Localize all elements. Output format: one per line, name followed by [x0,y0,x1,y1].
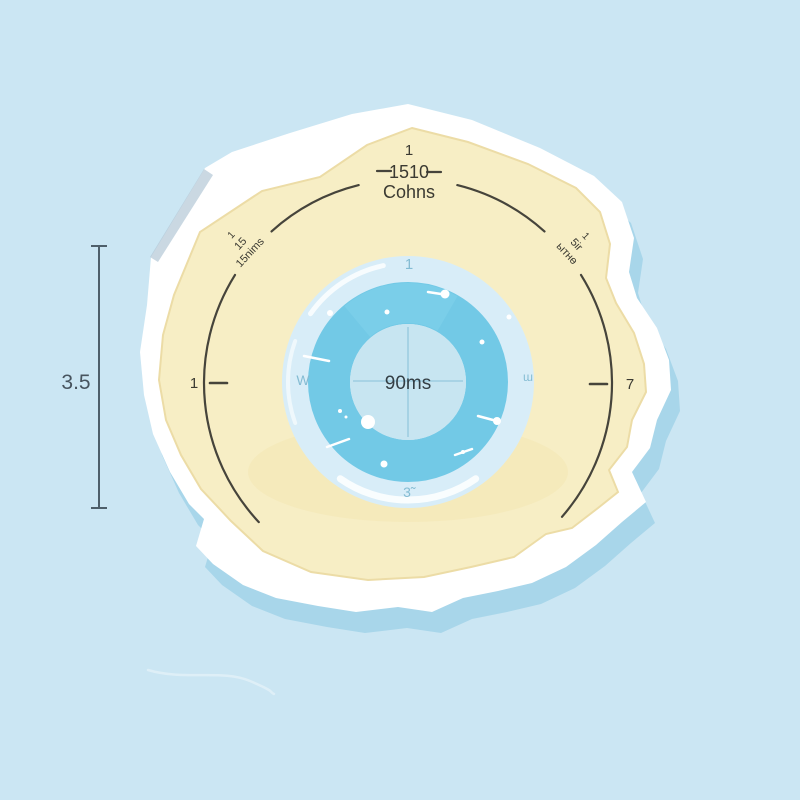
gauge-illustration: 1 1510 Cohns 1 7 1 15 15nims 1 5ir ытнө … [0,0,800,800]
sparkle-dot [507,315,512,320]
sparkle-dot [345,416,348,419]
dial-top-value: 1510 [389,162,429,182]
sparkle-dot [338,409,342,413]
sparkle-dot [493,417,501,425]
ring-top-label: 1 [405,256,413,273]
dial-top-tick-label: 1 [405,142,413,159]
sparkle-dot [361,415,375,429]
swim-ring-band-highlight [357,303,447,321]
sparkle-dot [480,340,485,345]
ring-left-label: W [296,372,310,388]
ring-right-label: ɯ [523,370,533,384]
sparkle-dot [327,310,333,316]
dial-right-tick-label: 7 [626,376,634,393]
dial-left-tick-label: 1 [190,375,198,392]
dimension-label: 3.5 [61,371,90,394]
sparkle-dot [381,461,388,468]
illustration-stage: 1 1510 Cohns 1 7 1 15 15nims 1 5ir ытнө … [0,0,800,800]
ring-center-value: 90ms [385,373,431,394]
sparkle-dot [385,310,390,315]
dial-top-unit: Cohns [383,182,435,202]
